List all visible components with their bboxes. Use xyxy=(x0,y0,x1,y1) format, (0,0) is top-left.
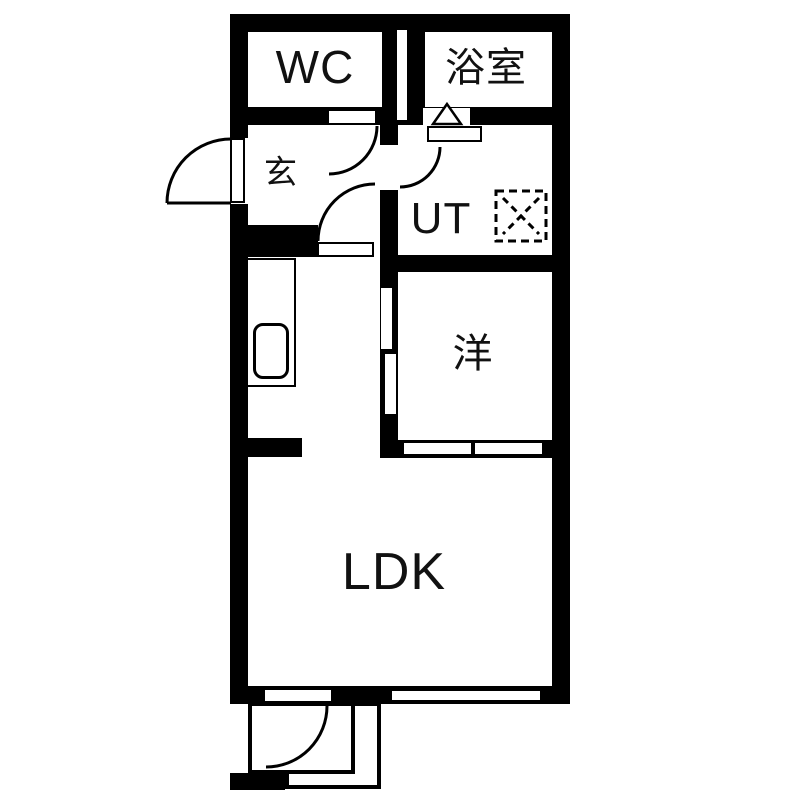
utility-door-opening xyxy=(380,145,398,190)
wc-door-swing-icon xyxy=(329,126,377,174)
wall-left xyxy=(230,14,248,704)
entry-door-swing-icon xyxy=(167,139,231,203)
room-label-wc: WC xyxy=(276,44,355,90)
room-label-utility: UT xyxy=(411,197,472,241)
wall-right xyxy=(552,14,570,704)
entry-door-panel xyxy=(230,138,245,203)
room-label-entrance: 玄 xyxy=(264,156,298,189)
hall-door-swing-icon xyxy=(318,184,375,241)
kitchen-sink-icon xyxy=(253,323,289,379)
utility-door-swing-icon xyxy=(400,147,440,187)
floor-plan: WC 浴室 玄 UT 洋 LDK xyxy=(0,0,797,800)
western-sliding-panel-b xyxy=(473,441,544,456)
bath-door-opening xyxy=(423,108,470,125)
wc-door-panel xyxy=(327,109,377,125)
hall-door-panel xyxy=(317,242,374,257)
terrace-door-panel xyxy=(263,688,333,703)
western-sliding-panel-a xyxy=(402,441,473,456)
wall-utility-bottom xyxy=(380,255,552,272)
washing-machine-area-icon xyxy=(496,191,546,241)
room-label-western: 洋 xyxy=(453,334,494,374)
wall-ldk-stub xyxy=(248,438,302,457)
porch-outline xyxy=(248,702,355,774)
window-icon xyxy=(390,689,542,702)
sliding-door-panel-b xyxy=(384,353,397,415)
sliding-door-panel-a xyxy=(380,287,393,350)
wall-porch-step xyxy=(230,773,285,790)
pipe-space-gap xyxy=(397,30,407,120)
bath-door-panel xyxy=(427,126,482,142)
wall-entrance-bottom xyxy=(248,225,318,257)
room-label-bath: 浴室 xyxy=(445,48,527,88)
room-label-ldk: LDK xyxy=(342,546,446,598)
